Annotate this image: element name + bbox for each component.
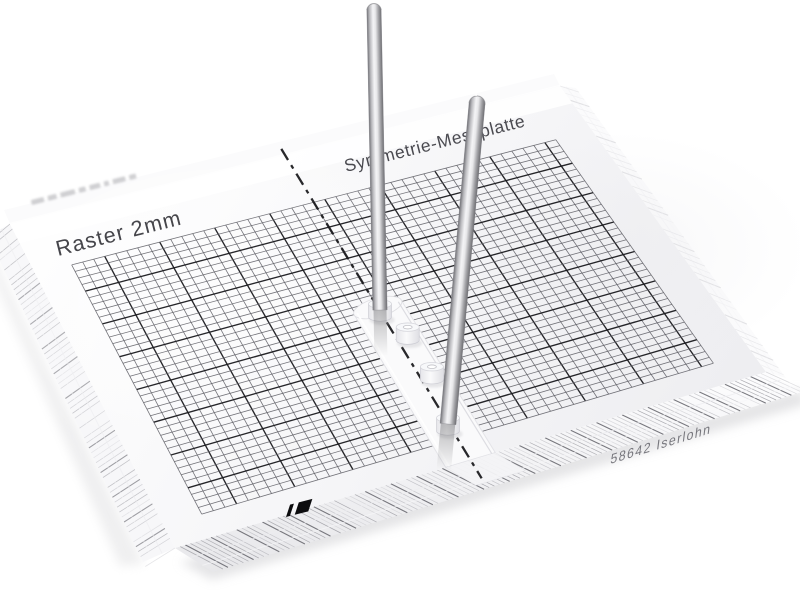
pin-highlight	[371, 0, 372, 2]
pin-base-shade	[444, 424, 448, 470]
pin-highlight	[476, 34, 482, 96]
product-photo: 58642 Iserlohn Raster 2mm Symmetrie-Mess…	[0, 0, 800, 591]
socket-hole	[403, 325, 412, 329]
pin-socket	[420, 363, 446, 388]
pin-socket	[396, 323, 422, 348]
socket-hole	[427, 365, 436, 369]
pin-base-shade	[380, 310, 381, 356]
